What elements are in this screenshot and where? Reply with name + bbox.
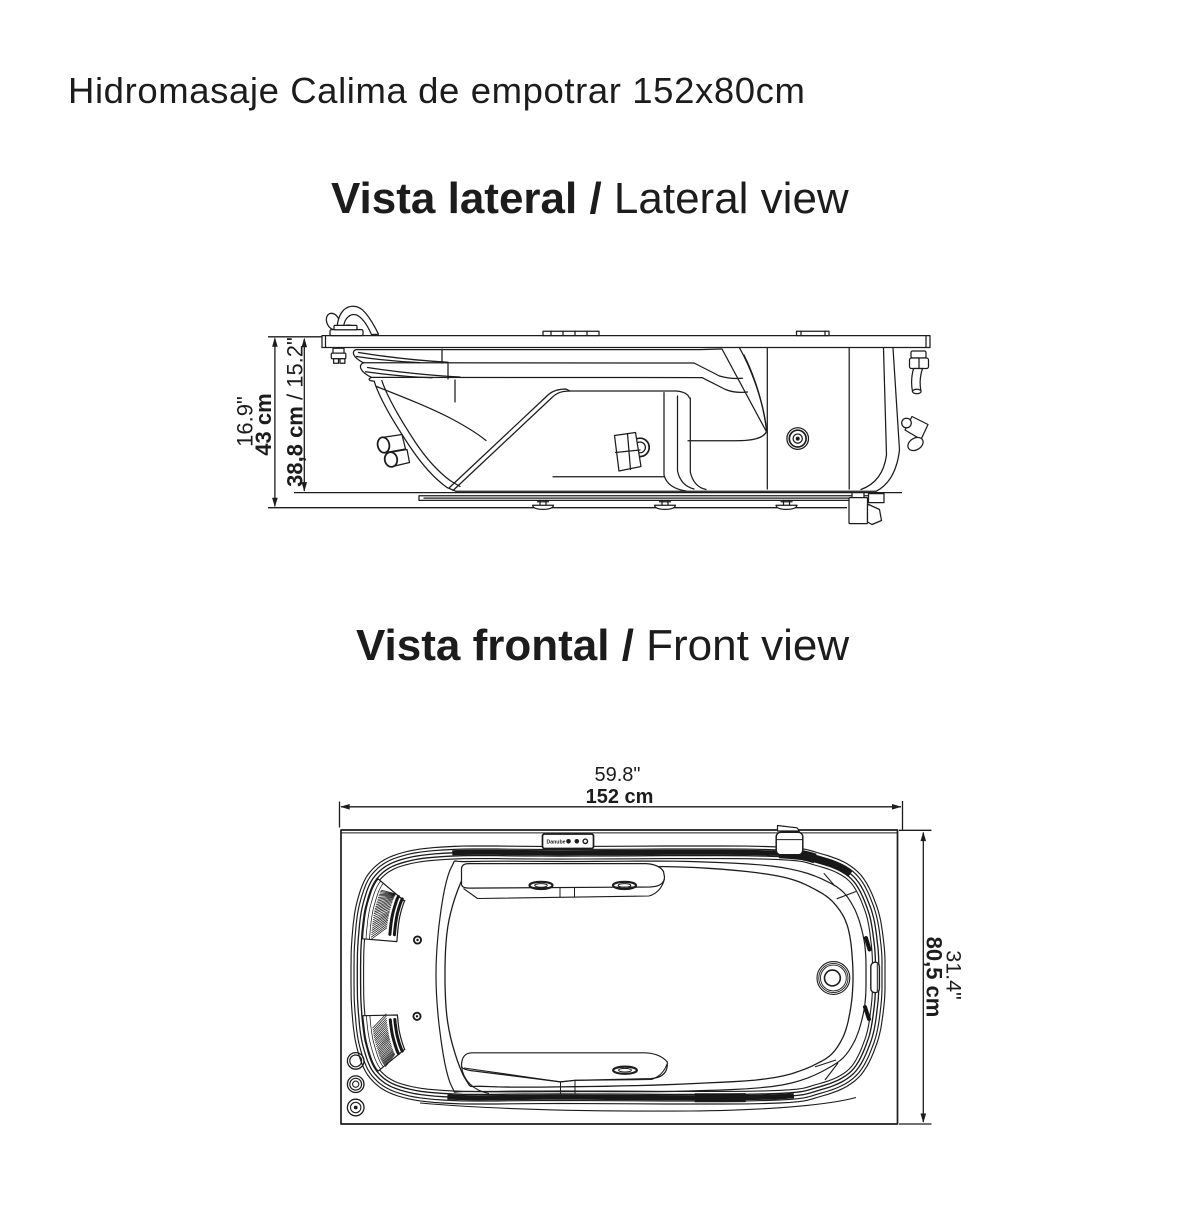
svg-text:Vista frontal / Front view: Vista frontal / Front view bbox=[356, 621, 849, 670]
svg-text:Hidromasaje Calima de empotrar: Hidromasaje Calima de empotrar 152x80cm bbox=[68, 70, 805, 111]
svg-text:Vista lateral / Lateral view: Vista lateral / Lateral view bbox=[331, 174, 849, 223]
svg-text:80,5 cm: 80,5 cm bbox=[922, 937, 947, 1018]
svg-text:43 cm: 43 cm bbox=[251, 393, 276, 455]
svg-text:38,8 cm / 15.2": 38,8 cm / 15.2" bbox=[283, 337, 308, 487]
svg-text:152 cm: 152 cm bbox=[586, 786, 654, 808]
svg-text:Danube: Danube bbox=[547, 840, 566, 846]
svg-text:59.8": 59.8" bbox=[594, 764, 640, 786]
